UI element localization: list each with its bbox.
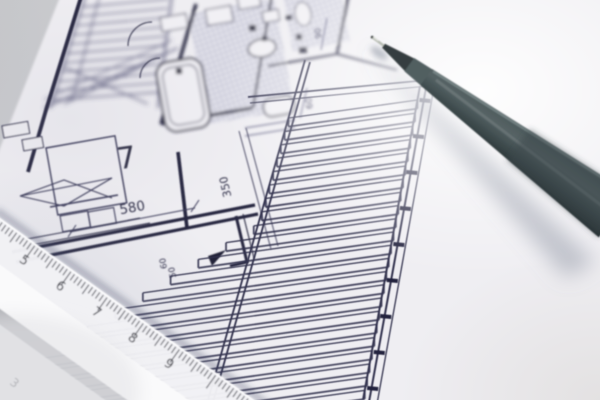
objects-layer: 56789 3 [0, 0, 600, 400]
photo-floor-plan-scene: 90 60 [0, 0, 600, 400]
pen-nib-metal [373, 38, 384, 46]
